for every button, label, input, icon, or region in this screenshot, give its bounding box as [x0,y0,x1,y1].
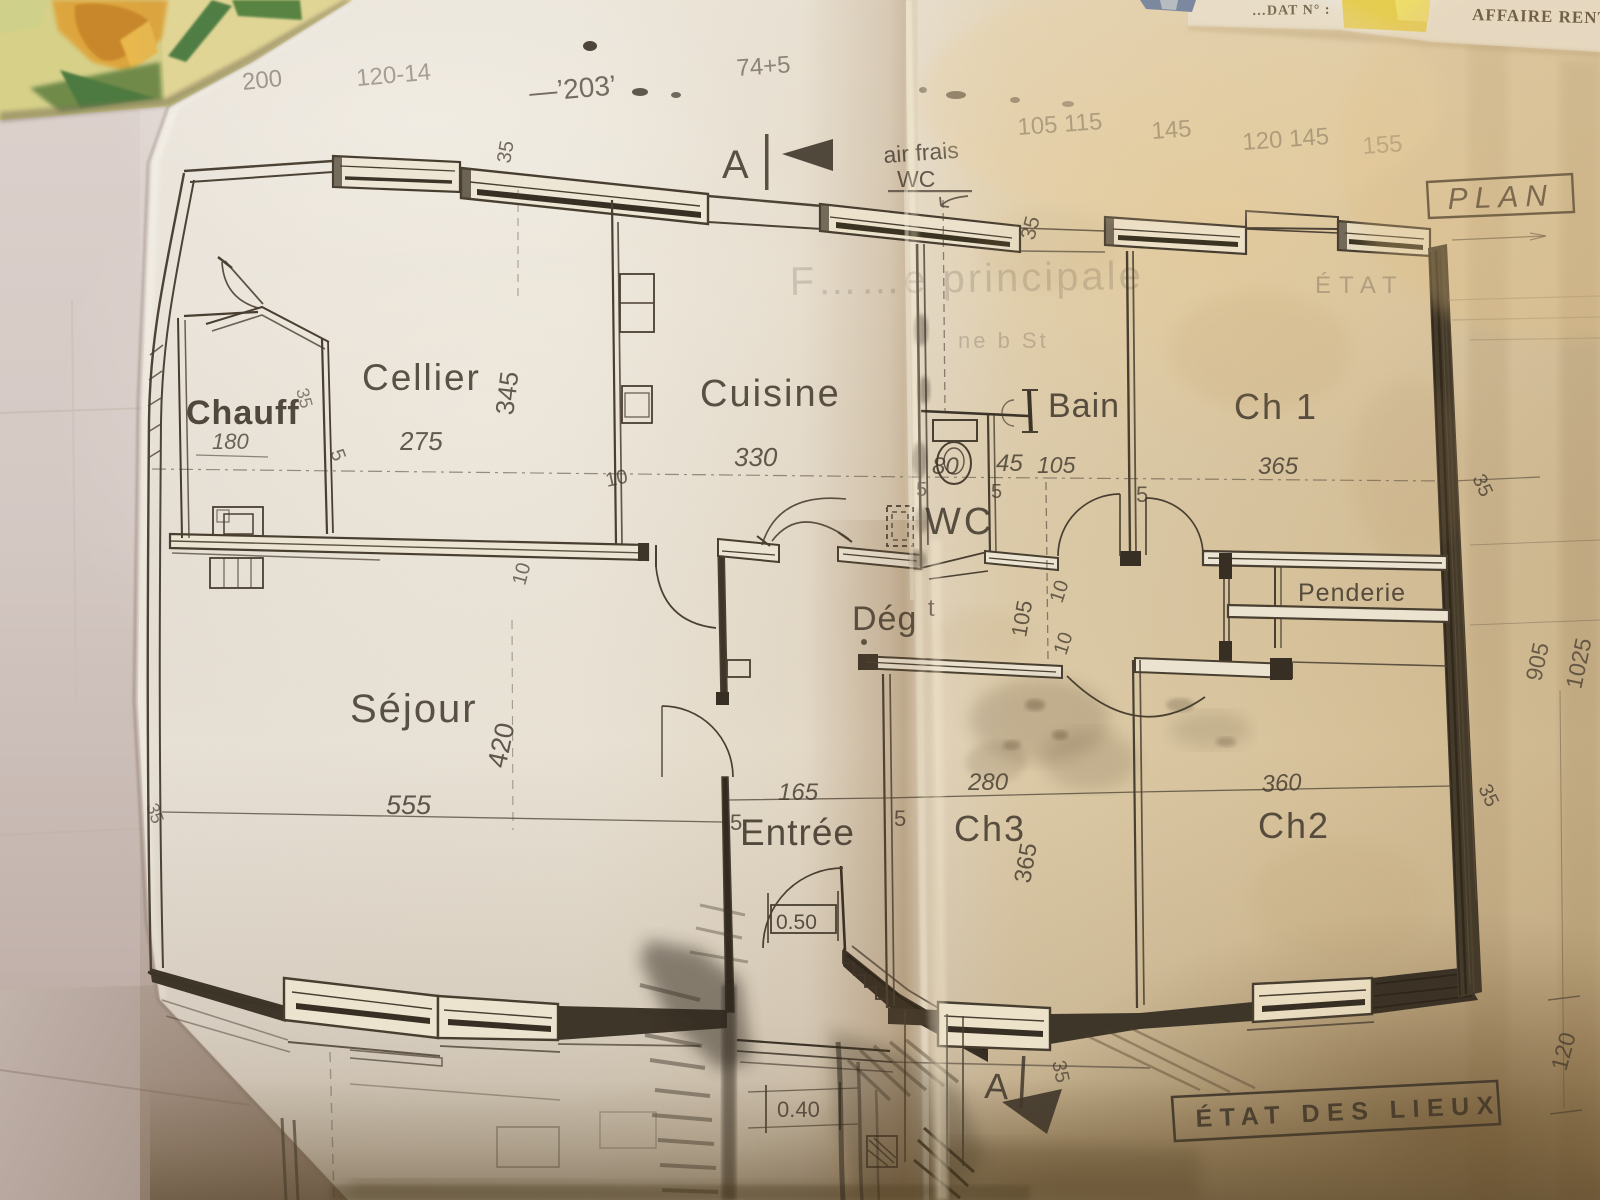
svg-text:35: 35 [493,139,519,165]
